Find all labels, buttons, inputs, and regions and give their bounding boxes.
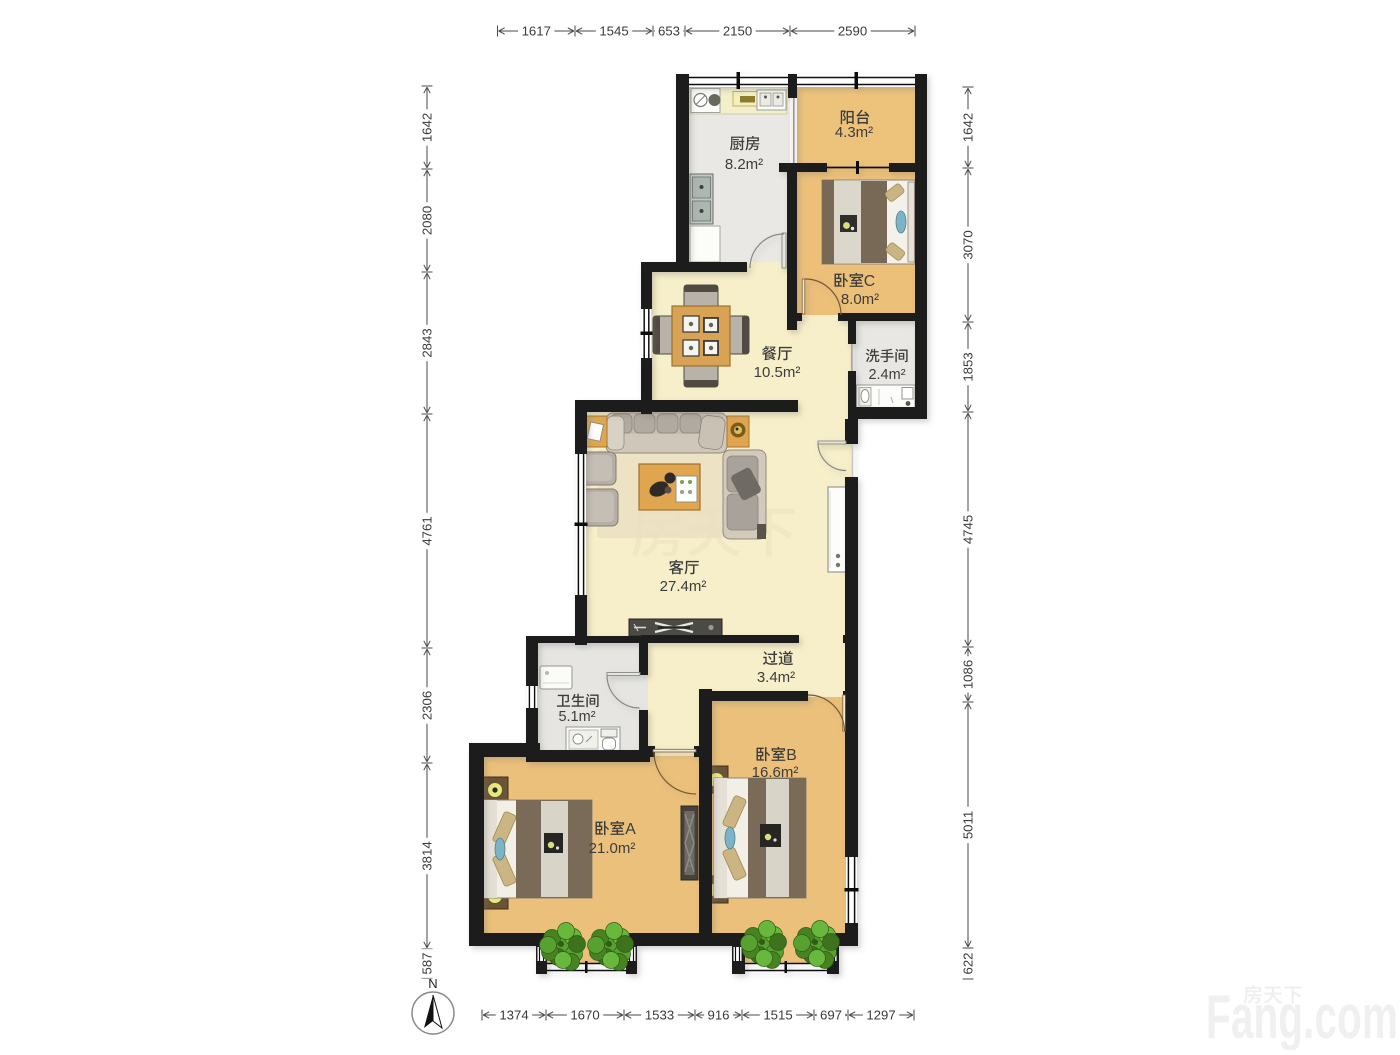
svg-text:2590: 2590 xyxy=(838,24,867,39)
svg-text:4.3m²: 4.3m² xyxy=(835,124,873,141)
svg-text:4745: 4745 xyxy=(961,515,976,544)
svg-text:10.5m²: 10.5m² xyxy=(754,364,801,381)
svg-text:27.4m²: 27.4m² xyxy=(660,578,707,595)
svg-text:8.0m²: 8.0m² xyxy=(841,291,879,308)
svg-text:2306: 2306 xyxy=(420,691,435,720)
svg-text:2843: 2843 xyxy=(420,328,435,357)
svg-text:5.1m²: 5.1m² xyxy=(558,709,595,725)
svg-text:B: B xyxy=(786,747,797,764)
svg-text:622: 622 xyxy=(961,952,976,974)
svg-text:3814: 3814 xyxy=(420,841,435,870)
svg-text:A: A xyxy=(625,821,636,838)
svg-text:3.4m²: 3.4m² xyxy=(757,669,795,686)
svg-text:1853: 1853 xyxy=(961,352,976,381)
svg-text:1086: 1086 xyxy=(961,660,976,689)
svg-text:5011: 5011 xyxy=(961,811,976,839)
svg-text:1642: 1642 xyxy=(961,113,976,142)
svg-text:16.6m²: 16.6m² xyxy=(752,764,799,781)
svg-text:1617: 1617 xyxy=(522,24,551,39)
svg-text:4761: 4761 xyxy=(420,516,435,545)
svg-text:1374: 1374 xyxy=(499,1008,528,1023)
svg-text:587: 587 xyxy=(420,952,435,974)
svg-text:2080: 2080 xyxy=(420,206,435,235)
svg-text:21.0m²: 21.0m² xyxy=(589,840,636,857)
svg-text:1670: 1670 xyxy=(570,1008,599,1023)
svg-text:1297: 1297 xyxy=(866,1008,895,1023)
svg-text:1533: 1533 xyxy=(645,1008,674,1023)
svg-text:1545: 1545 xyxy=(599,24,628,39)
svg-text:916: 916 xyxy=(707,1008,729,1023)
svg-text:C: C xyxy=(864,273,875,290)
svg-text:1515: 1515 xyxy=(763,1008,792,1023)
svg-text:Fang.com: Fang.com xyxy=(1206,983,1398,1050)
svg-text:3070: 3070 xyxy=(961,230,976,259)
svg-text:1642: 1642 xyxy=(420,113,435,142)
svg-text:2150: 2150 xyxy=(723,24,752,39)
svg-text:N: N xyxy=(428,976,437,991)
svg-text:697: 697 xyxy=(820,1008,842,1023)
svg-text:8.2m²: 8.2m² xyxy=(725,156,763,173)
svg-text:653: 653 xyxy=(658,24,680,39)
svg-text:2.4m²: 2.4m² xyxy=(868,367,905,383)
